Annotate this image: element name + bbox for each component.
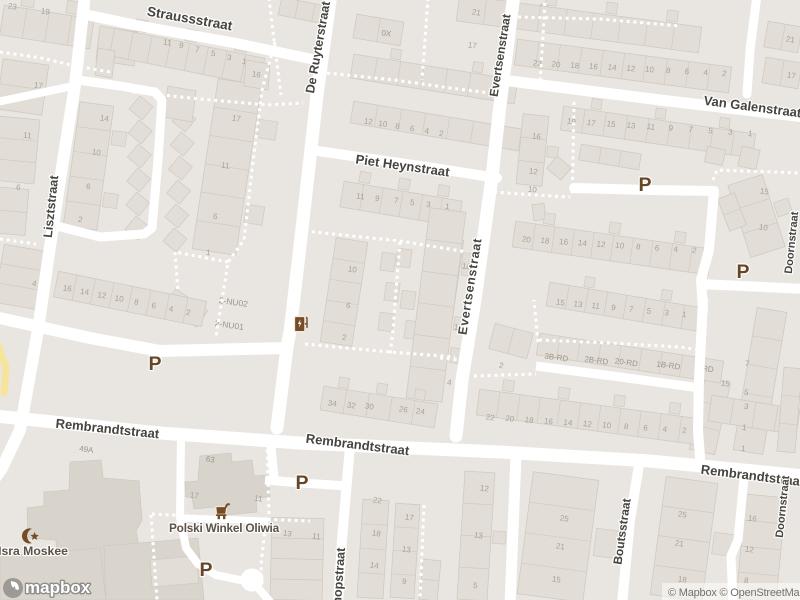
- svg-text:30: 30: [364, 401, 375, 411]
- svg-text:16: 16: [544, 416, 555, 426]
- svg-text:13: 13: [573, 299, 584, 309]
- svg-text:16: 16: [747, 513, 758, 523]
- svg-text:17: 17: [586, 118, 597, 128]
- svg-text:18: 18: [570, 60, 581, 70]
- svg-text:12: 12: [528, 166, 539, 176]
- svg-text:12: 12: [582, 419, 593, 429]
- svg-text:20: 20: [551, 59, 562, 69]
- svg-text:14: 14: [577, 238, 588, 248]
- svg-text:34: 34: [327, 398, 338, 408]
- svg-text:13: 13: [282, 528, 293, 538]
- svg-text:12: 12: [596, 239, 607, 249]
- svg-text:10: 10: [602, 420, 613, 430]
- svg-text:Polski Winkel Oliwia: Polski Winkel Oliwia: [169, 521, 280, 535]
- svg-text:23: 23: [7, 1, 18, 11]
- svg-text:16: 16: [588, 61, 599, 71]
- svg-text:14: 14: [369, 560, 380, 570]
- svg-text:16: 16: [62, 283, 73, 293]
- svg-text:17: 17: [189, 490, 200, 500]
- svg-text:13: 13: [401, 544, 412, 554]
- svg-text:P: P: [736, 261, 749, 283]
- svg-text:15: 15: [759, 186, 770, 196]
- svg-text:P: P: [295, 472, 308, 494]
- svg-text:15: 15: [720, 378, 731, 388]
- svg-text:26: 26: [398, 404, 409, 414]
- svg-text:17: 17: [231, 113, 242, 123]
- svg-text:25: 25: [559, 513, 570, 523]
- svg-text:21: 21: [471, 7, 482, 17]
- svg-text:16: 16: [559, 237, 570, 247]
- svg-text:12: 12: [626, 63, 637, 73]
- svg-text:P: P: [148, 353, 161, 375]
- svg-text:24: 24: [415, 406, 426, 416]
- svg-text:32: 32: [346, 400, 357, 410]
- svg-text:0X: 0X: [381, 28, 393, 38]
- svg-text:21: 21: [555, 541, 566, 551]
- svg-text:22: 22: [485, 412, 496, 422]
- svg-text:13: 13: [473, 530, 484, 540]
- svg-text:© Mapbox © OpenStreetMap: © Mapbox © OpenStreetMap: [668, 587, 800, 599]
- svg-text:10: 10: [114, 294, 125, 304]
- svg-text:20: 20: [521, 234, 532, 244]
- svg-text:14: 14: [80, 287, 91, 297]
- svg-text:17: 17: [786, 70, 797, 80]
- svg-text:10: 10: [645, 64, 656, 74]
- svg-text:19: 19: [40, 6, 51, 16]
- svg-text:16: 16: [531, 131, 542, 141]
- svg-text:Isra Moskee: Isra Moskee: [0, 544, 68, 558]
- svg-text:12: 12: [363, 116, 374, 126]
- svg-text:P: P: [638, 174, 651, 196]
- svg-text:15: 15: [606, 119, 617, 129]
- svg-text:13: 13: [626, 120, 637, 130]
- svg-text:18: 18: [524, 415, 535, 425]
- svg-text:P: P: [199, 559, 212, 581]
- svg-text:14: 14: [99, 113, 110, 123]
- svg-text:10: 10: [615, 241, 626, 251]
- svg-text:17: 17: [467, 40, 478, 50]
- svg-text:12: 12: [97, 290, 108, 300]
- svg-text:15: 15: [555, 297, 566, 307]
- svg-text:12: 12: [479, 483, 490, 493]
- svg-text:10: 10: [347, 264, 358, 274]
- svg-text:mapbox: mapbox: [25, 578, 91, 597]
- svg-text:21: 21: [785, 34, 796, 44]
- svg-text:17: 17: [404, 512, 415, 522]
- svg-text:18: 18: [540, 236, 551, 246]
- svg-text:19: 19: [566, 116, 577, 126]
- svg-text:10: 10: [91, 147, 102, 157]
- svg-text:15: 15: [551, 574, 562, 584]
- svg-text:12: 12: [744, 544, 755, 554]
- svg-text:25: 25: [677, 509, 688, 519]
- svg-text:10: 10: [758, 222, 769, 232]
- svg-text:14: 14: [563, 418, 574, 428]
- svg-text:20: 20: [505, 414, 516, 424]
- svg-text:10: 10: [378, 119, 389, 129]
- svg-text:63: 63: [205, 454, 216, 464]
- svg-text:22: 22: [372, 495, 383, 505]
- svg-text:18: 18: [371, 528, 382, 538]
- svg-text:16: 16: [251, 69, 262, 79]
- svg-text:21: 21: [674, 538, 685, 548]
- svg-text:14: 14: [607, 62, 618, 72]
